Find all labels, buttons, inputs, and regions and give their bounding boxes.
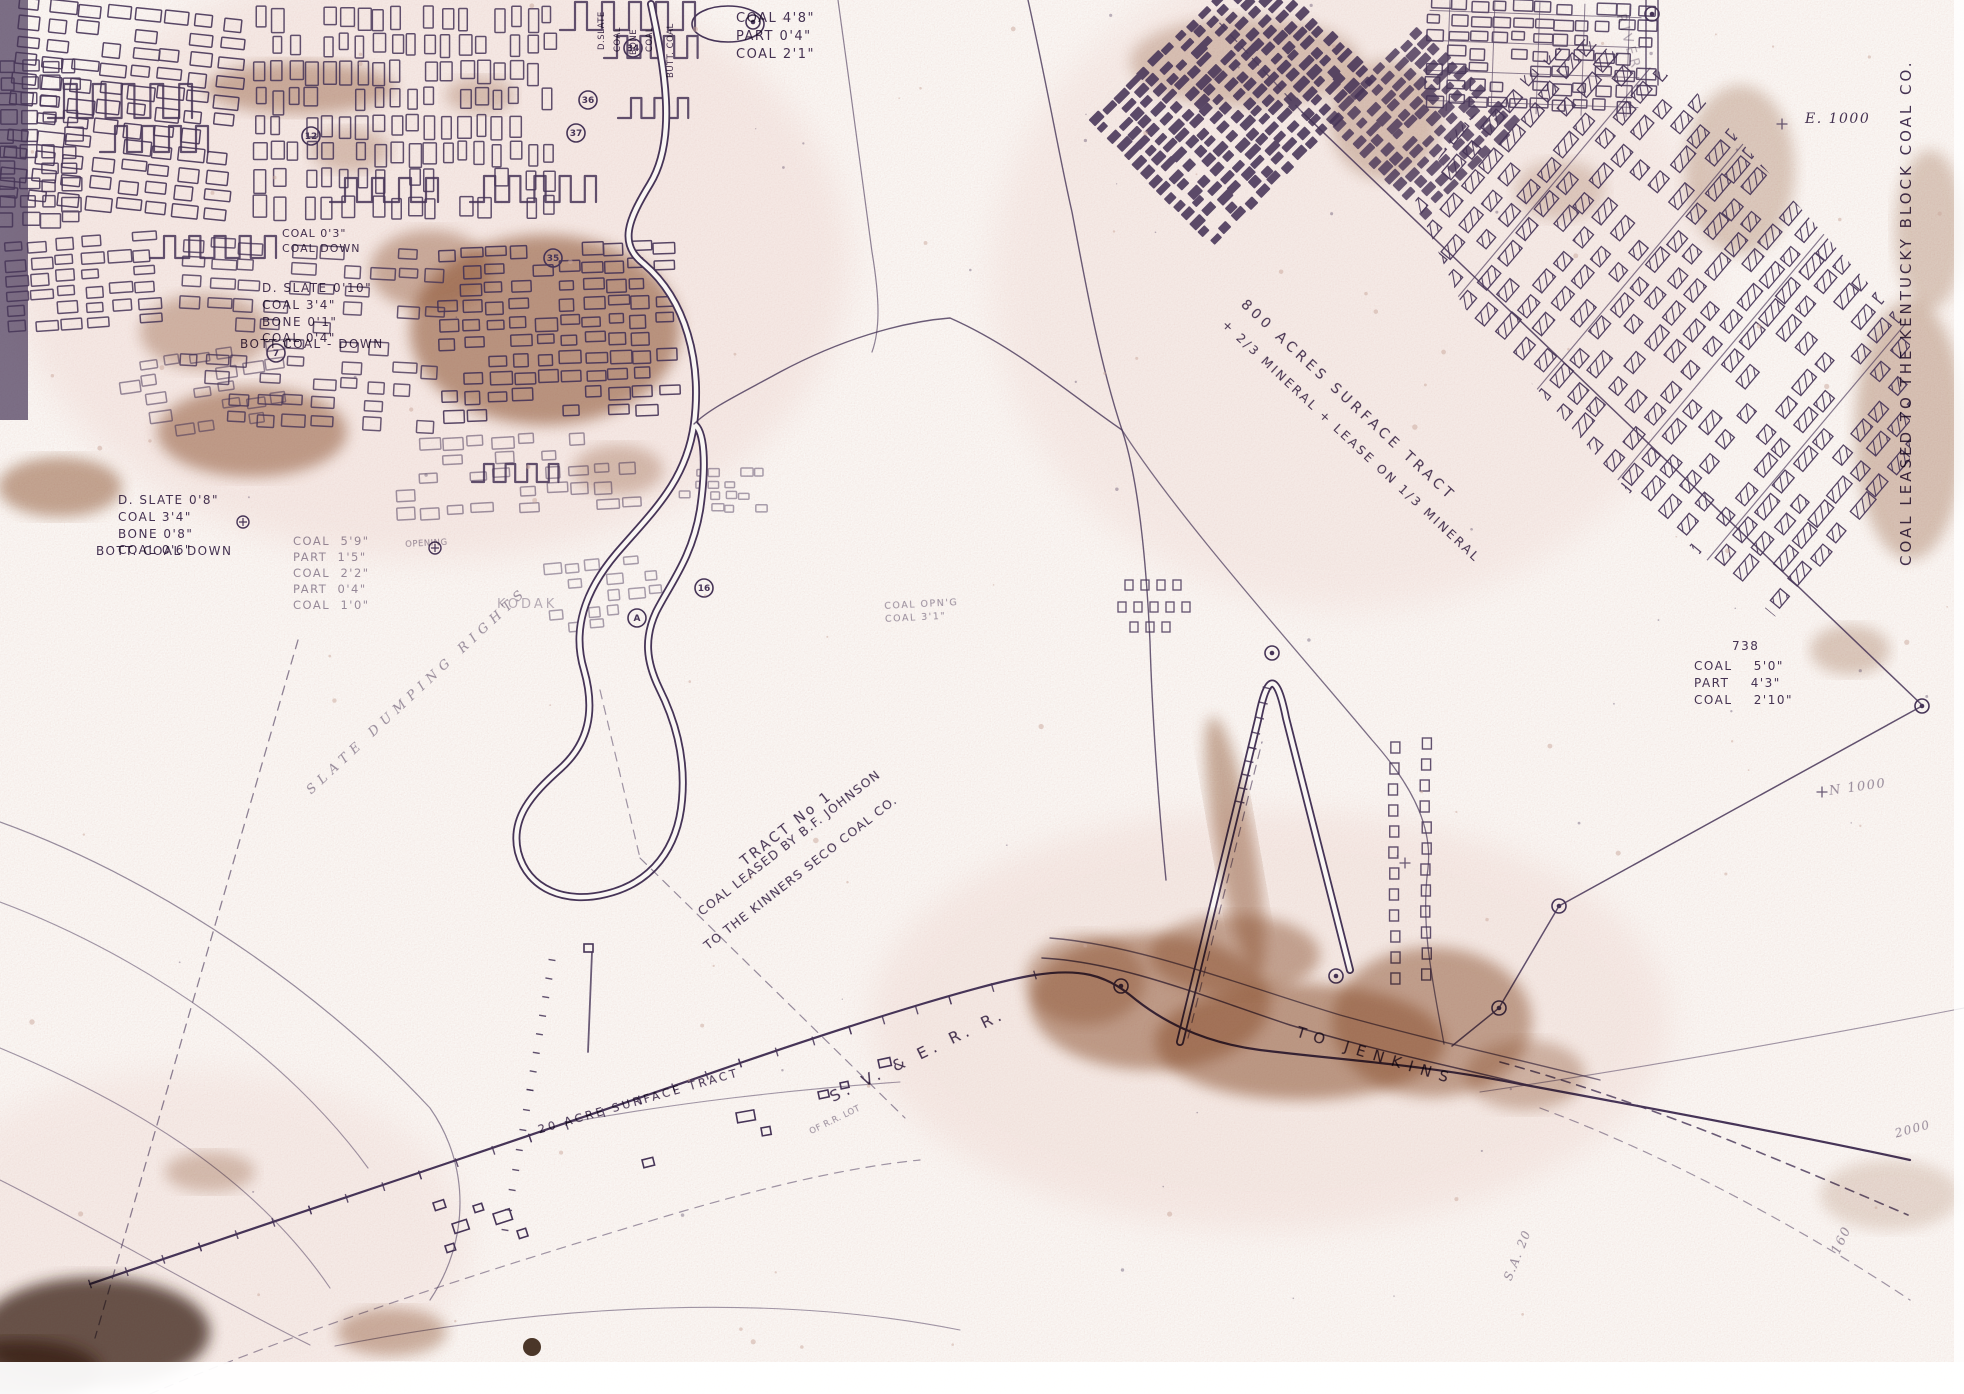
seam-section-mid-label: COAL 5'9" PART 1'5" COAL 2'2" PART 0'4" … xyxy=(293,533,370,613)
svg-text:A: A xyxy=(634,614,641,624)
svg-text:36: 36 xyxy=(582,96,595,106)
vertical-seam-word-1: D.SLATE xyxy=(597,11,609,50)
svg-text:16: 16 xyxy=(698,584,711,594)
svg-text:35: 35 xyxy=(547,254,560,264)
opening-note-label: OPENING xyxy=(405,538,448,552)
coal-down-note-label: COAL 0'3" COAL DOWN xyxy=(282,226,361,257)
vertical-seam-word-3: BONE xyxy=(629,29,641,55)
seam-section-top-label: COAL 4'8" PART 0'4" COAL 2'1" xyxy=(736,10,815,65)
svg-text:37: 37 xyxy=(570,129,583,139)
svg-text:12: 12 xyxy=(305,132,318,142)
faint-watermark-label: KODAK xyxy=(497,596,557,614)
vertical-seam-word-2: COAL xyxy=(613,27,625,52)
bott-coal-down-label-2: BOTT. COAL DOWN xyxy=(96,543,232,560)
kentucky-block-lease-label: COAL LEASED TO THE KENTUCKY BLOCK COAL C… xyxy=(1896,60,1917,566)
vertical-seam-word-5: BUTT. COAL xyxy=(666,23,678,78)
map-drawing-layer: 3436373512716A xyxy=(0,0,1964,1394)
scanned-mine-map: 3436373512716A COAL 4'8" PART 0'4" COAL … xyxy=(0,0,1964,1394)
bott-coal-down-label-1: BOTT COAL - DOWN xyxy=(240,336,384,353)
coordinate-e1000-label: E. 1000 xyxy=(1805,110,1870,130)
paper-speckle-texture xyxy=(0,0,1964,1394)
coal-opening-note-label: COAL OPN'G COAL 3'1" xyxy=(884,596,959,626)
station-738-label: 738 xyxy=(1732,638,1759,655)
vertical-seam-word-4: COAL xyxy=(645,27,657,52)
seam-section-right-label: COAL 5'0" PART 4'3" COAL 2'10" xyxy=(1694,658,1793,708)
